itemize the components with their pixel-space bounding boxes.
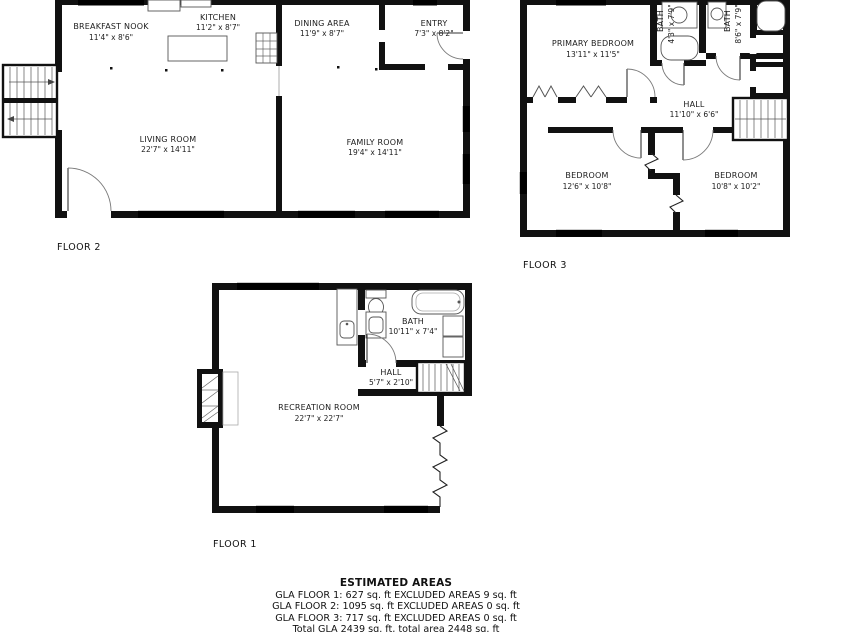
- floor-2-plan: BREAKFAST NOOK 11'4" x 8'6" KITCHEN 11'2…: [3, 0, 470, 218]
- summary-line-floor2: GLA FLOOR 2: 1095 sq. ft EXCLUDED AREAS …: [170, 601, 622, 612]
- wall-break-zigzags: [433, 426, 447, 507]
- room-dims-living-room: 22'7" x 14'11": [141, 145, 195, 154]
- room-dims-dining-area: 11'9" x 8'7": [300, 29, 344, 38]
- room-dims-bath-small: 4'3" x 7'9": [667, 4, 676, 43]
- column-markers: [110, 66, 378, 72]
- floor-3-label: FLOOR 3: [523, 260, 567, 271]
- window: [463, 154, 470, 184]
- room-label-recreation-room: RECREATION ROOM: [278, 403, 360, 412]
- room-dims-primary-bedroom: 13'11" x 11'5": [566, 50, 620, 59]
- room-label-entry: ENTRY: [421, 19, 448, 28]
- window: [705, 230, 738, 237]
- fireplace: [197, 369, 238, 428]
- sink-faucet: [346, 323, 349, 326]
- staircase: [417, 362, 465, 393]
- room-label-dining-area: DINING AREA: [294, 19, 350, 28]
- bathtub-inner: [416, 293, 460, 311]
- sink: [369, 317, 383, 333]
- room-labels: BATH 10'11" x 7'4" HALL 5'7" x 2'10" REC…: [278, 317, 437, 423]
- window: [78, 0, 144, 6]
- staircase: [3, 65, 57, 137]
- room-label-bedroom-left: BEDROOM: [565, 171, 608, 180]
- room-label-bedroom-right: BEDROOM: [714, 171, 757, 180]
- window: [385, 211, 439, 218]
- room-dims-hall: 11'10" x 6'6": [670, 110, 719, 119]
- room-dims-entry: 7'3" x 8'2": [414, 29, 453, 38]
- counter: [181, 0, 211, 7]
- room-dims-bedroom-right: 10'8" x 10'2": [712, 182, 761, 191]
- staircase: [733, 98, 788, 140]
- door-arc: [627, 69, 655, 97]
- floor-1-label: FLOOR 1: [213, 539, 257, 550]
- room-dims-bedroom-left: 12'6" x 10'8": [563, 182, 612, 191]
- sink: [711, 8, 723, 20]
- kitchen-island: [168, 36, 227, 61]
- room-dims-kitchen: 11'2" x 8'7": [196, 23, 240, 32]
- window: [413, 0, 437, 6]
- linen-closet: [443, 337, 463, 357]
- summary-title: ESTIMATED AREAS: [170, 577, 622, 589]
- toilet-tank: [366, 290, 386, 298]
- window: [520, 172, 527, 194]
- room-label-primary-bedroom: PRIMARY BEDROOM: [552, 39, 634, 48]
- bathtub: [757, 1, 785, 31]
- room-label-bath: BATH: [402, 317, 424, 326]
- floor-1-plan: BATH 10'11" x 7'4" HALL 5'7" x 2'10" REC…: [197, 283, 472, 513]
- room-label-bath-large: BATH: [723, 10, 732, 32]
- room-label-kitchen: KITCHEN: [200, 13, 236, 22]
- door-arc: [716, 56, 740, 80]
- summary-line-total: Total GLA 2439 sq. ft, total area 2448 s…: [170, 624, 622, 632]
- door-arc: [68, 168, 111, 211]
- bath-fixtures: [337, 289, 464, 357]
- room-label-hall: HALL: [683, 100, 705, 109]
- floor-plan-drawing: BREAKFAST NOOK 11'4" x 8'6" KITCHEN 11'2…: [0, 0, 843, 632]
- room-dims-bath-large: 8'6" x 7'9": [734, 4, 743, 43]
- window: [556, 0, 606, 6]
- floor-2-label: FLOOR 2: [57, 242, 101, 253]
- room-dims-bath: 10'11" x 7'4": [389, 327, 438, 336]
- floor-3-plan: PRIMARY BEDROOM 13'11" x 11'5" BATH 4'3"…: [520, 0, 790, 237]
- summary-line-floor3: GLA FLOOR 3: 717 sq. ft EXCLUDED AREAS 0…: [170, 613, 622, 624]
- room-label-breakfast-nook: BREAKFAST NOOK: [73, 22, 149, 31]
- window: [556, 230, 602, 237]
- room-dims-hall: 5'7" x 2'10": [369, 378, 413, 387]
- linen-closet: [443, 316, 463, 336]
- estimated-areas-summary: ESTIMATED AREAS GLA FLOOR 1: 627 sq. ft …: [170, 577, 622, 632]
- door-arc: [613, 130, 641, 158]
- window: [256, 506, 294, 513]
- tub-faucet: [458, 301, 461, 304]
- room-label-living-room: LIVING ROOM: [140, 135, 197, 144]
- door-arc: [683, 130, 713, 160]
- windows: [237, 283, 428, 513]
- summary-line-floor1: GLA FLOOR 1: 627 sq. ft EXCLUDED AREAS 9…: [170, 590, 622, 601]
- room-dims-breakfast-nook: 11'4" x 8'6": [89, 33, 133, 42]
- closet-bifold-doors: [533, 86, 606, 97]
- window: [298, 211, 355, 218]
- room-dims-family-room: 19'4" x 14'11": [348, 148, 402, 157]
- window: [384, 506, 428, 513]
- floor-plan-document: BREAKFAST NOOK 11'4" x 8'6" KITCHEN 11'2…: [0, 0, 843, 632]
- window: [138, 211, 224, 218]
- room-label-hall: HALL: [380, 368, 402, 377]
- window: [463, 106, 470, 132]
- door-arcs: [613, 56, 740, 160]
- room-label-bath-small: BATH: [656, 10, 665, 32]
- refrigerator: [256, 33, 277, 63]
- room-dims-recreation-room: 22'7" x 22'7": [295, 414, 344, 423]
- room-label-family-room: FAMILY ROOM: [347, 138, 404, 147]
- window: [237, 283, 319, 290]
- range: [148, 0, 180, 11]
- hearth: [223, 372, 238, 425]
